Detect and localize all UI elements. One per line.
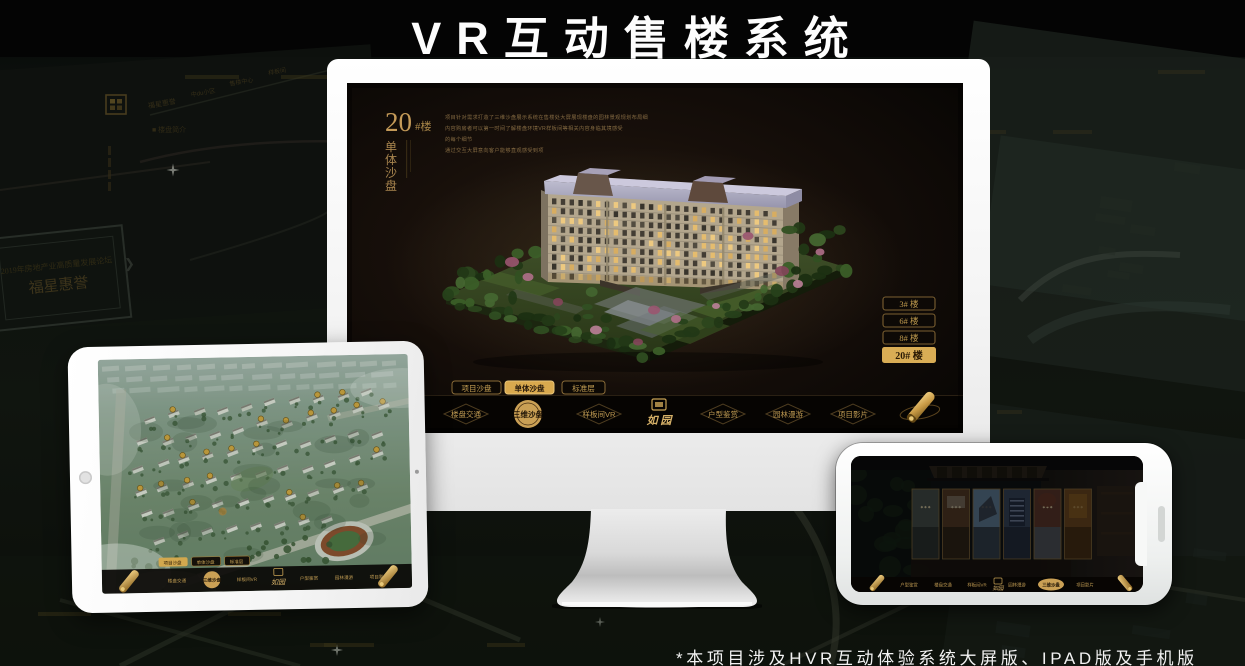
svg-text:项目沙盘: 项目沙盘 — [462, 383, 492, 393]
svg-text:体: 体 — [385, 153, 397, 167]
svg-text:样板间VR: 样板间VR — [583, 409, 617, 419]
svg-text:三维沙盘: 三维沙盘 — [1042, 582, 1060, 589]
svg-text:❯: ❯ — [124, 256, 135, 272]
svg-text:6# 楼: 6# 楼 — [899, 316, 919, 326]
svg-text:3# 楼: 3# 楼 — [899, 299, 919, 309]
svg-text:园林漫游: 园林漫游 — [1008, 582, 1026, 589]
svg-text:8# 楼: 8# 楼 — [899, 333, 919, 343]
svg-text:20: 20 — [385, 107, 412, 137]
svg-text:单体沙盘: 单体沙盘 — [515, 383, 545, 393]
svg-text:项目影片: 项目影片 — [838, 409, 868, 419]
svg-text:园林漫游: 园林漫游 — [773, 409, 803, 419]
svg-text:的每个细节: 的每个细节 — [445, 135, 472, 143]
svg-text:内容购房者可以第一时间了解楼盘环境VR样板间等相关内容身临其: 内容购房者可以第一时间了解楼盘环境VR样板间等相关内容身临其境感受 — [445, 124, 623, 132]
svg-text:通过交互大屏意向客户能够直观感受到项: 通过交互大屏意向客户能够直观感受到项 — [445, 146, 544, 154]
svg-text:样板间VR: 样板间VR — [967, 582, 986, 589]
svg-text:标准层: 标准层 — [572, 383, 595, 393]
svg-text:如园: 如园 — [992, 585, 1005, 592]
svg-text:■ 楼盘简介: ■ 楼盘简介 — [152, 125, 186, 134]
svg-text:如 园: 如 园 — [647, 414, 674, 427]
svg-text:沙: 沙 — [385, 166, 397, 180]
svg-text:三维沙盘: 三维沙盘 — [513, 409, 543, 419]
svg-text:楼盘交通: 楼盘交通 — [934, 582, 952, 589]
svg-text:项目影片: 项目影片 — [1076, 582, 1094, 589]
svg-text:#楼: #楼 — [415, 119, 432, 133]
svg-text:如园: 如园 — [271, 578, 286, 586]
svg-text:户型鉴赏: 户型鉴赏 — [708, 409, 738, 419]
svg-text:20# 楼: 20# 楼 — [895, 349, 923, 362]
svg-text:户型鉴赏: 户型鉴赏 — [900, 582, 918, 589]
svg-text:楼盘交通: 楼盘交通 — [451, 409, 481, 419]
svg-text:单: 单 — [385, 140, 397, 154]
svg-text:盘: 盘 — [385, 178, 397, 193]
svg-text:项目针对需求打造了三维沙盘展示系统在售楼处大屏展现楼盘的园林: 项目针对需求打造了三维沙盘展示系统在售楼处大屏展现楼盘的园林景观规划布局细 — [445, 113, 648, 121]
